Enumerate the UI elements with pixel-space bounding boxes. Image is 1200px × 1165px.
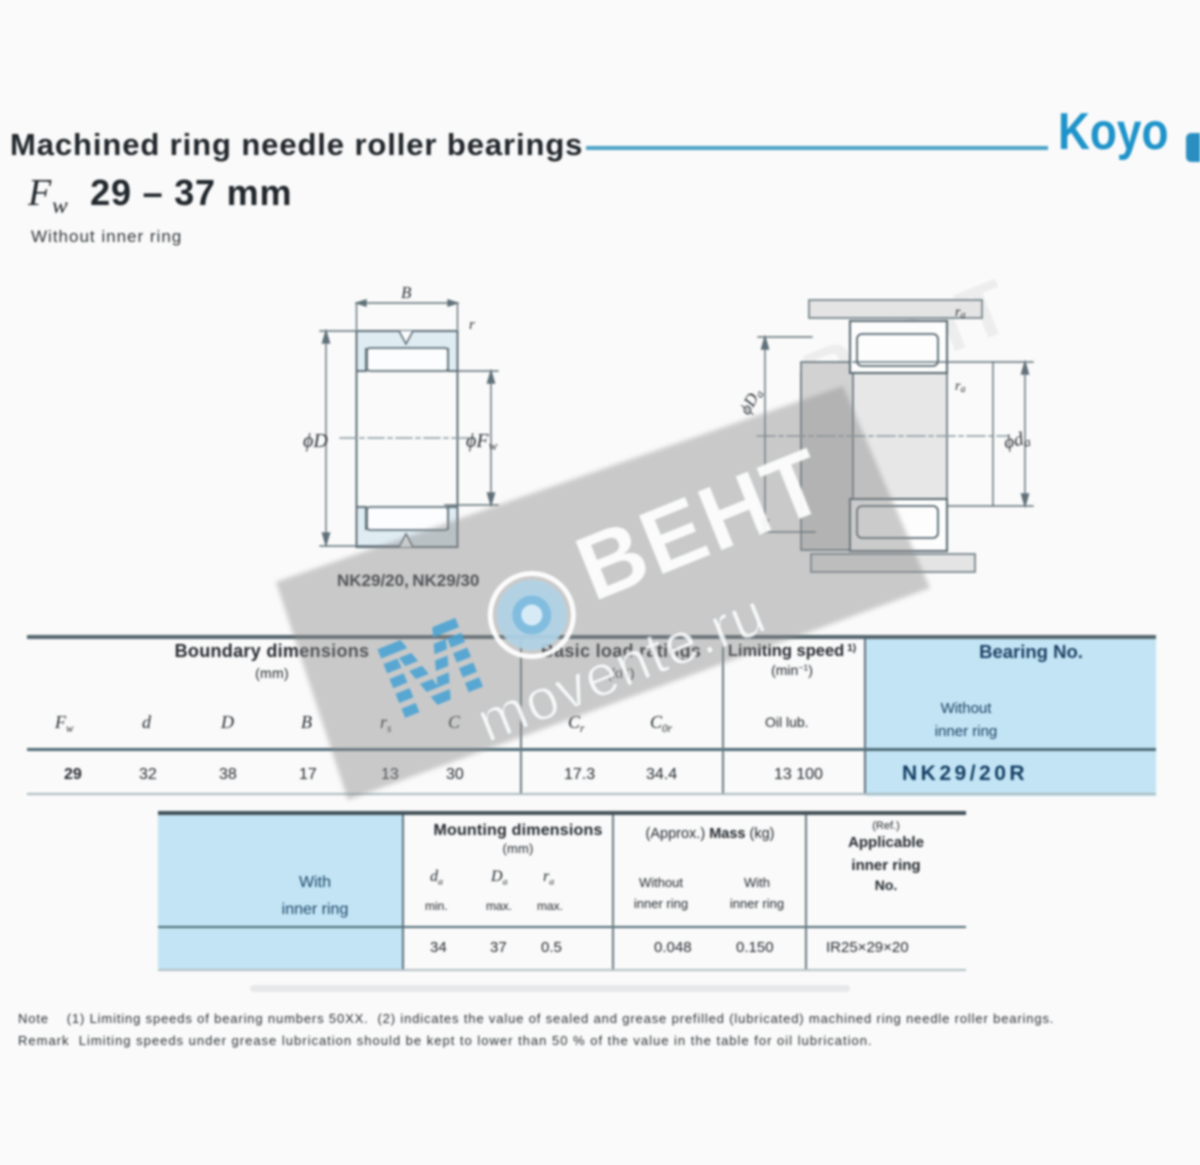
svg-text:ϕda: ϕda <box>1002 427 1033 455</box>
svg-text:r: r <box>469 317 475 333</box>
svg-text:ϕDa: ϕDa <box>736 385 767 419</box>
svg-text:ϕFw: ϕFw <box>466 430 498 453</box>
svg-text:B: B <box>401 283 412 302</box>
svg-text:ϕD: ϕD <box>303 430 328 452</box>
svg-text:ra: ra <box>955 379 965 395</box>
